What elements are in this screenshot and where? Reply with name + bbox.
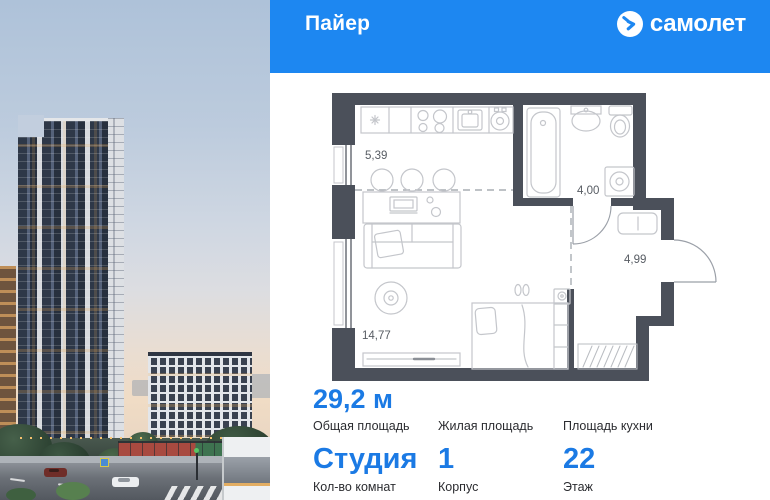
stat-rooms-label: Кол-во комнат [313, 480, 438, 494]
info-panel: Пайер самолет [270, 0, 770, 500]
stat-total-area-label: Общая площадь [313, 419, 438, 433]
stat-floor-value: 22 [563, 445, 688, 474]
hall-shelf [618, 213, 657, 234]
road-sign [100, 458, 109, 467]
stools [371, 169, 455, 191]
stat-building-value: 1 [438, 445, 563, 474]
washing-machine-icon [605, 167, 634, 196]
dresser [363, 353, 460, 366]
stat-living-area-value [438, 386, 563, 413]
bed [472, 303, 568, 369]
project-title: Пайер [305, 12, 370, 36]
floor-plan: 5,39 4,00 4,99 14,77 [332, 93, 722, 383]
header-bar: Пайер самолет [270, 0, 770, 73]
bathroom-area-label: 4,00 [577, 185, 599, 197]
stat-rooms-value: Студия [313, 445, 438, 474]
listing-card[interactable]: Пайер самолет [0, 0, 770, 500]
living-room-area-label: 14,77 [362, 330, 391, 342]
bush [6, 488, 36, 500]
stat-kitchen-area: Площадь кухни [563, 386, 688, 433]
white-car [112, 477, 139, 487]
stat-total-area-value: 29,2 м [313, 386, 438, 413]
stat-kitchen-area-value [563, 386, 688, 413]
stat-floor: 22 Этаж [563, 445, 688, 494]
tower-white-column [108, 118, 124, 470]
stat-living-area-label: Жилая площадь [438, 419, 563, 433]
bathroom-door [573, 206, 611, 244]
slippers-icon [515, 285, 529, 296]
stat-building: 1 Корпус [438, 445, 563, 494]
kitchen-appliance-icon [491, 108, 509, 130]
brand-name: самолет [650, 10, 746, 38]
bush [56, 482, 90, 500]
kitchen-area-label: 5,39 [365, 150, 387, 162]
hallway-area-label: 4,99 [624, 254, 646, 266]
stat-kitchen-area-label: Площадь кухни [563, 419, 688, 433]
stove-icon [418, 110, 447, 133]
stat-living-area: Жилая площадь [438, 386, 563, 433]
bathroom-sink-icon [571, 106, 601, 131]
hob-symbol [371, 116, 380, 125]
stat-rooms: Студия Кол-во комнат [313, 445, 438, 494]
brand-logo: самолет [617, 10, 746, 38]
sofa [364, 224, 461, 268]
building-photo [0, 0, 270, 500]
tower-roof-step [18, 115, 44, 137]
stat-floor-label: Этаж [563, 480, 688, 494]
traffic-light [196, 452, 198, 480]
stat-building-label: Корпус [438, 480, 563, 494]
pavilion-glass [224, 457, 270, 485]
round-table [375, 282, 407, 314]
bathtub-icon [527, 108, 560, 197]
sink-icon [458, 110, 482, 130]
pavilion-light [224, 483, 270, 486]
pavilion-building [222, 437, 270, 500]
samolet-icon [617, 11, 643, 37]
string-lights [20, 437, 232, 439]
stat-total-area: 29,2 м Общая площадь [313, 386, 438, 433]
wardrobe [578, 344, 637, 369]
entrance-door [674, 240, 716, 282]
desk [363, 192, 460, 223]
toilet-icon [609, 106, 632, 137]
red-car [44, 468, 67, 477]
